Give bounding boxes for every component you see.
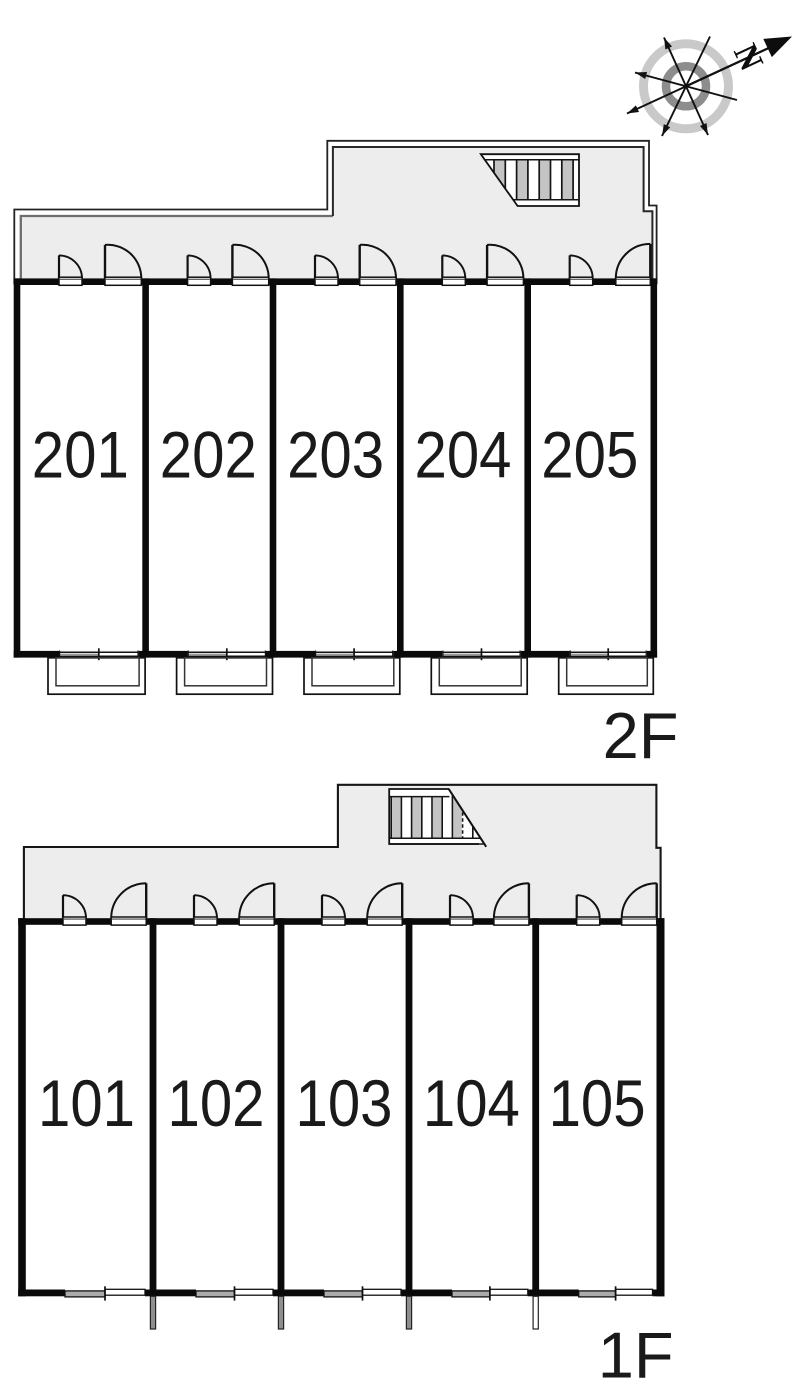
svg-text:103: 103 xyxy=(296,1066,393,1140)
svg-text:105: 105 xyxy=(549,1066,646,1140)
svg-text:102: 102 xyxy=(168,1066,265,1140)
svg-text:2F: 2F xyxy=(603,699,679,772)
svg-text:202: 202 xyxy=(160,418,257,492)
svg-text:104: 104 xyxy=(423,1066,520,1140)
svg-text:205: 205 xyxy=(541,418,638,492)
svg-text:101: 101 xyxy=(38,1066,135,1140)
svg-text:201: 201 xyxy=(32,418,129,492)
svg-text:1F: 1F xyxy=(598,1319,674,1382)
svg-text:203: 203 xyxy=(287,418,384,492)
svg-text:N: N xyxy=(726,39,770,77)
svg-text:204: 204 xyxy=(415,418,512,492)
